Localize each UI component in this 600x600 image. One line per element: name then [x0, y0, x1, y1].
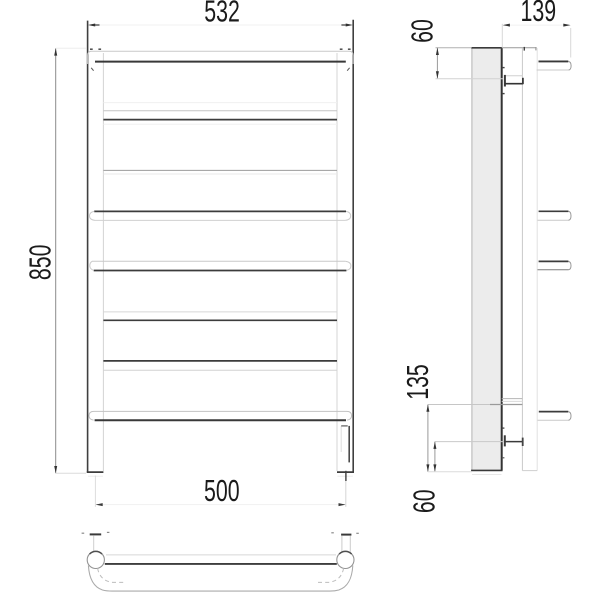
svg-text:532: 532: [204, 0, 240, 29]
svg-text:139: 139: [520, 0, 556, 28]
svg-text:60: 60: [407, 489, 442, 513]
svg-text:60: 60: [405, 19, 440, 43]
svg-text:500: 500: [204, 473, 240, 508]
svg-text:850: 850: [22, 244, 57, 280]
svg-text:135: 135: [400, 364, 435, 400]
